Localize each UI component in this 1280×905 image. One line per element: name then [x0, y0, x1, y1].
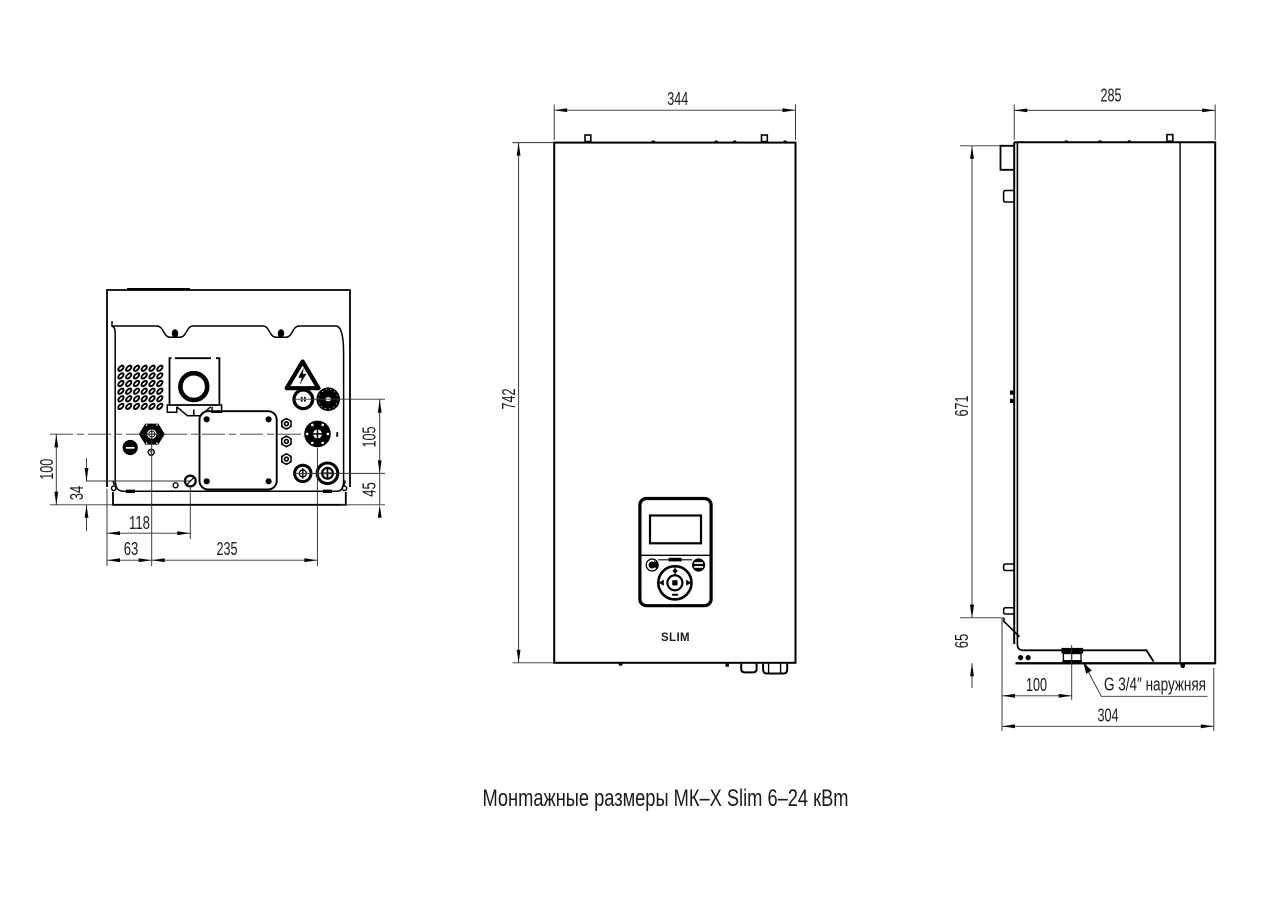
svg-text:118: 118 — [129, 513, 150, 533]
svg-text:100: 100 — [1026, 675, 1047, 695]
svg-text:671: 671 — [952, 396, 972, 417]
svg-text:235: 235 — [217, 539, 238, 559]
svg-text:34: 34 — [67, 486, 87, 501]
svg-text:SLIM: SLIM — [661, 632, 690, 644]
svg-text:G 3/4″ наружняя: G 3/4″ наружняя — [1104, 675, 1206, 695]
svg-text:100: 100 — [37, 459, 57, 480]
svg-text:Монmажные размеры МК–Х Slim 6–: Монmажные размеры МК–Х Slim 6–24 кВm — [483, 785, 849, 812]
svg-text:304: 304 — [1098, 705, 1119, 725]
svg-text:65: 65 — [952, 634, 972, 649]
svg-text:344: 344 — [667, 89, 688, 109]
svg-text:285: 285 — [1101, 86, 1122, 106]
svg-text:742: 742 — [499, 389, 519, 410]
svg-text:105: 105 — [360, 427, 380, 448]
svg-text:63: 63 — [124, 539, 139, 559]
svg-text:45: 45 — [360, 482, 380, 497]
